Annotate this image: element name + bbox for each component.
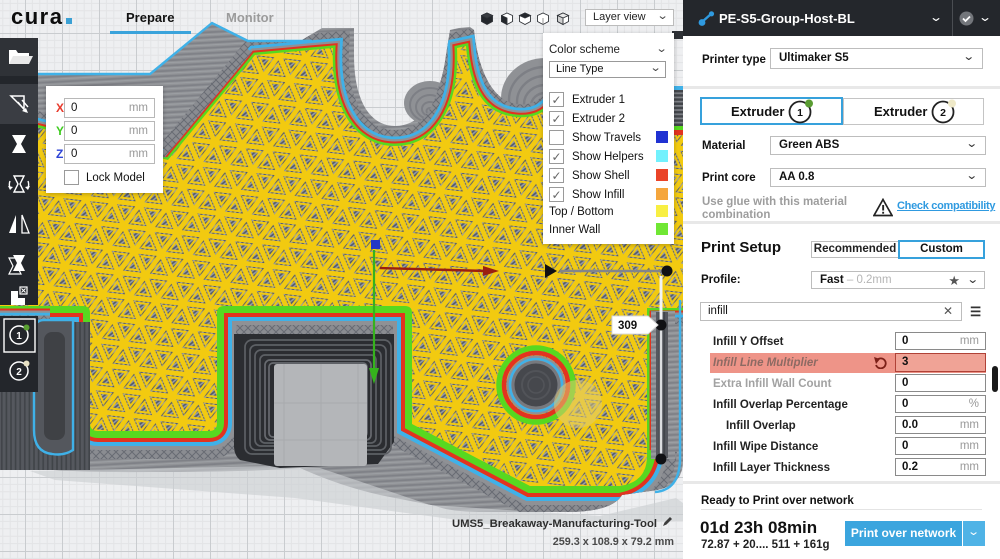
- svg-text:1: 1: [797, 107, 803, 119]
- svg-text:UMS5_Breakaway-Manufacturing-T: UMS5_Breakaway-Manufacturing-Tool: [452, 518, 657, 530]
- svg-text:2: 2: [16, 367, 22, 378]
- svg-text:1: 1: [16, 331, 22, 342]
- svg-text:2: 2: [940, 107, 946, 119]
- svg-text:259.3 x 108.9 x 79.2 mm: 259.3 x 108.9 x 79.2 mm: [553, 536, 674, 548]
- svg-text:309: 309: [618, 320, 637, 332]
